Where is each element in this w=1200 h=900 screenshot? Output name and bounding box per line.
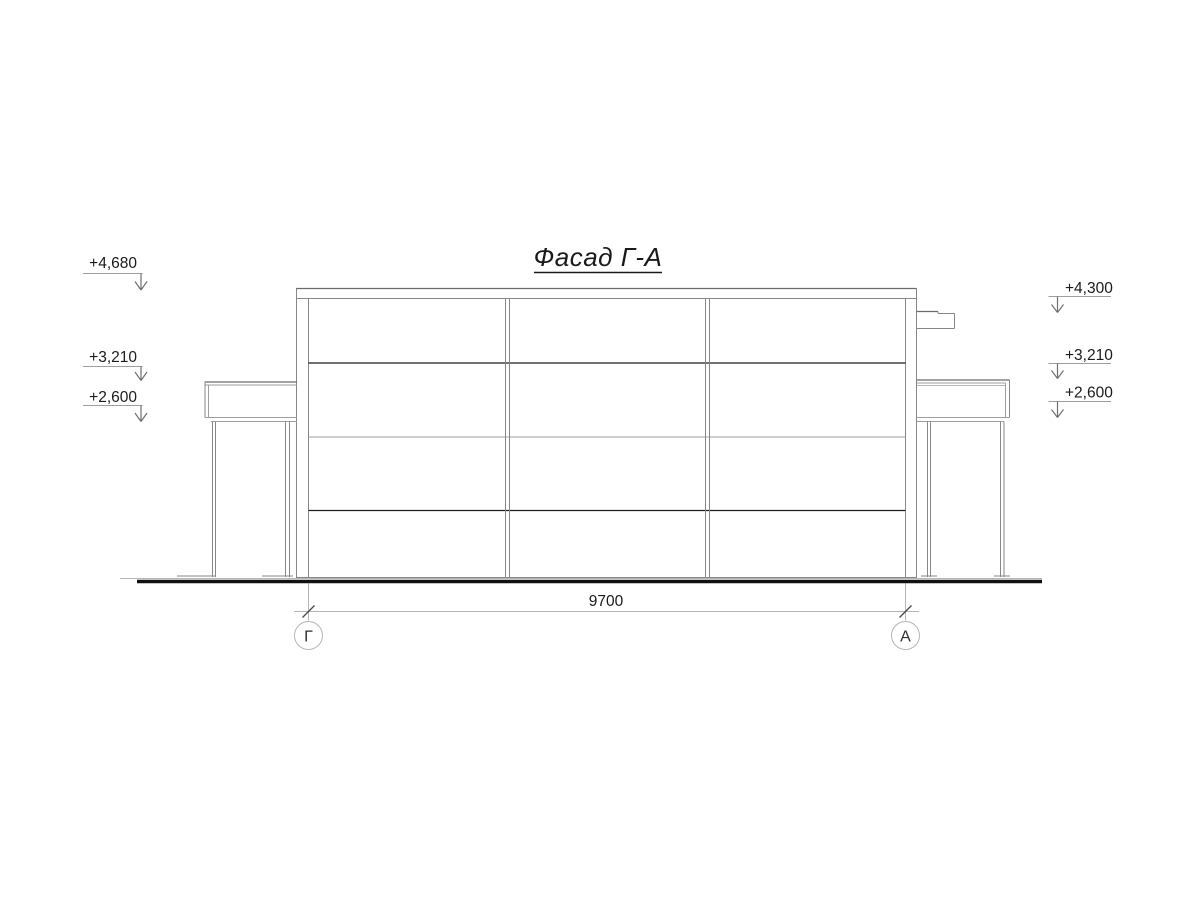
elevation-label: +4,680 (89, 255, 137, 272)
ground (120, 579, 1042, 582)
axis-markers: Г А (295, 622, 920, 650)
drawing-title: Фасад Г-А (534, 242, 663, 273)
down-arrow-icon (1052, 402, 1064, 418)
canopy-right (917, 380, 1010, 577)
elevation-mark: +4,680 (83, 255, 147, 290)
elevation-mark: +4,300 (1049, 280, 1114, 313)
canopy-left (177, 382, 297, 577)
drawing-sheet: Фасад Г-А (0, 0, 1200, 900)
elevation-label: +3,210 (1065, 347, 1113, 364)
down-arrow-icon (1052, 364, 1064, 379)
down-arrow-icon (135, 274, 147, 291)
building-facade (297, 289, 917, 578)
roof-protrusion (917, 312, 955, 329)
elevation-mark: +2,600 (83, 389, 147, 422)
axis-letter: А (900, 629, 911, 646)
elevation-marks-left: +4,680 +3,210 +2,600 (83, 255, 147, 422)
title-text: Фасад Г-А (534, 242, 663, 272)
axis-letter: Г (304, 629, 313, 646)
elevation-marks-right: +4,300 +3,210 +2,600 (1049, 280, 1114, 418)
dimension: 9700 (294, 584, 919, 621)
elevation-mark: +3,210 (1049, 347, 1114, 379)
building-outline (297, 289, 917, 578)
facade-drawing: Фасад Г-А (0, 0, 1200, 900)
elevation-mark: +3,210 (83, 349, 147, 381)
axis-marker-right: А (892, 622, 920, 650)
elevation-label: +4,300 (1065, 280, 1113, 297)
axis-marker-left: Г (295, 622, 323, 650)
down-arrow-icon (135, 367, 147, 381)
down-arrow-icon (135, 406, 147, 422)
elevation-mark: +2,600 (1049, 385, 1114, 418)
dimension-value: 9700 (589, 593, 624, 610)
down-arrow-icon (1052, 297, 1064, 313)
elevation-label: +2,600 (1065, 385, 1113, 402)
elevation-label: +2,600 (89, 389, 137, 406)
elevation-label: +3,210 (89, 349, 137, 366)
